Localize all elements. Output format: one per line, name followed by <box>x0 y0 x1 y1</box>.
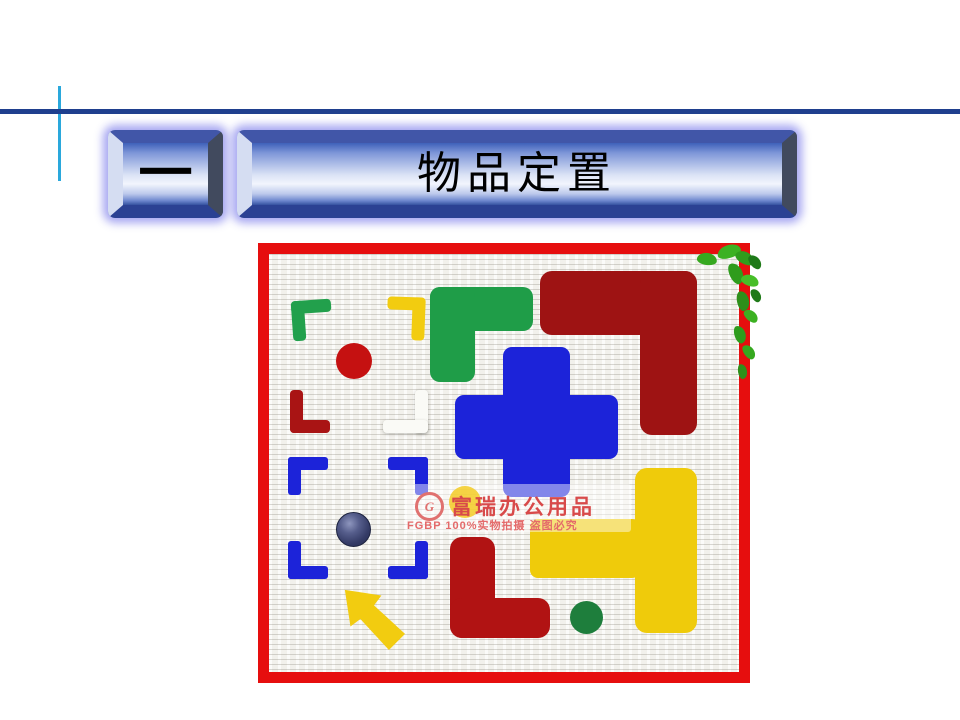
leaf-icon <box>737 363 748 379</box>
section-number: 一 <box>139 147 193 201</box>
white-corner-marker <box>383 390 428 433</box>
leaf-icon <box>732 324 748 345</box>
page-title: 物品定置 <box>417 152 617 196</box>
marker-part <box>288 457 301 495</box>
section-title-banner: 物品定置 <box>237 130 797 218</box>
presentation-slide: 一 物品定置 <box>0 0 960 720</box>
section-number-badge: 一 <box>108 130 223 218</box>
coin <box>336 512 371 547</box>
watermark: G 富瑞办公用品 FGBP 100%实物拍摄 盗图必究 <box>405 484 631 532</box>
horizontal-divider-line <box>0 109 960 114</box>
yellow-corner-marker <box>386 296 425 340</box>
green-corner-marker <box>291 299 334 342</box>
leaf-icon <box>742 307 761 325</box>
blue-bracket-top-left <box>288 457 328 495</box>
marker-part <box>290 420 330 433</box>
blue-bracket-bottom-right <box>388 541 428 579</box>
green-dot-marker <box>570 601 603 634</box>
marker-part <box>411 297 425 340</box>
blue-bracket-bottom-left <box>288 541 328 579</box>
red-dot-marker <box>336 343 372 379</box>
leaf-icon <box>696 252 717 267</box>
leaf-icon <box>746 253 764 272</box>
watermark-tagline-text: FGBP 100%实物拍摄 盗图必究 <box>407 517 578 533</box>
brand-logo-letter: G <box>425 499 434 515</box>
leaf-icon <box>740 343 758 362</box>
product-photo: G 富瑞办公用品 FGBP 100%实物拍摄 盗图必究 <box>258 243 750 683</box>
marker-part <box>291 301 307 342</box>
leaf-icon <box>740 272 761 288</box>
marker-part <box>635 468 697 633</box>
marker-part <box>288 541 301 579</box>
marker-part <box>383 420 428 433</box>
plant-decoration <box>689 245 753 397</box>
vertical-accent-line <box>58 86 61 181</box>
yellow-arrow-marker <box>343 588 405 650</box>
leaf-icon <box>749 287 764 304</box>
maroon-corner-marker <box>290 390 330 433</box>
marker-part <box>415 541 428 579</box>
marker-part <box>455 395 618 459</box>
